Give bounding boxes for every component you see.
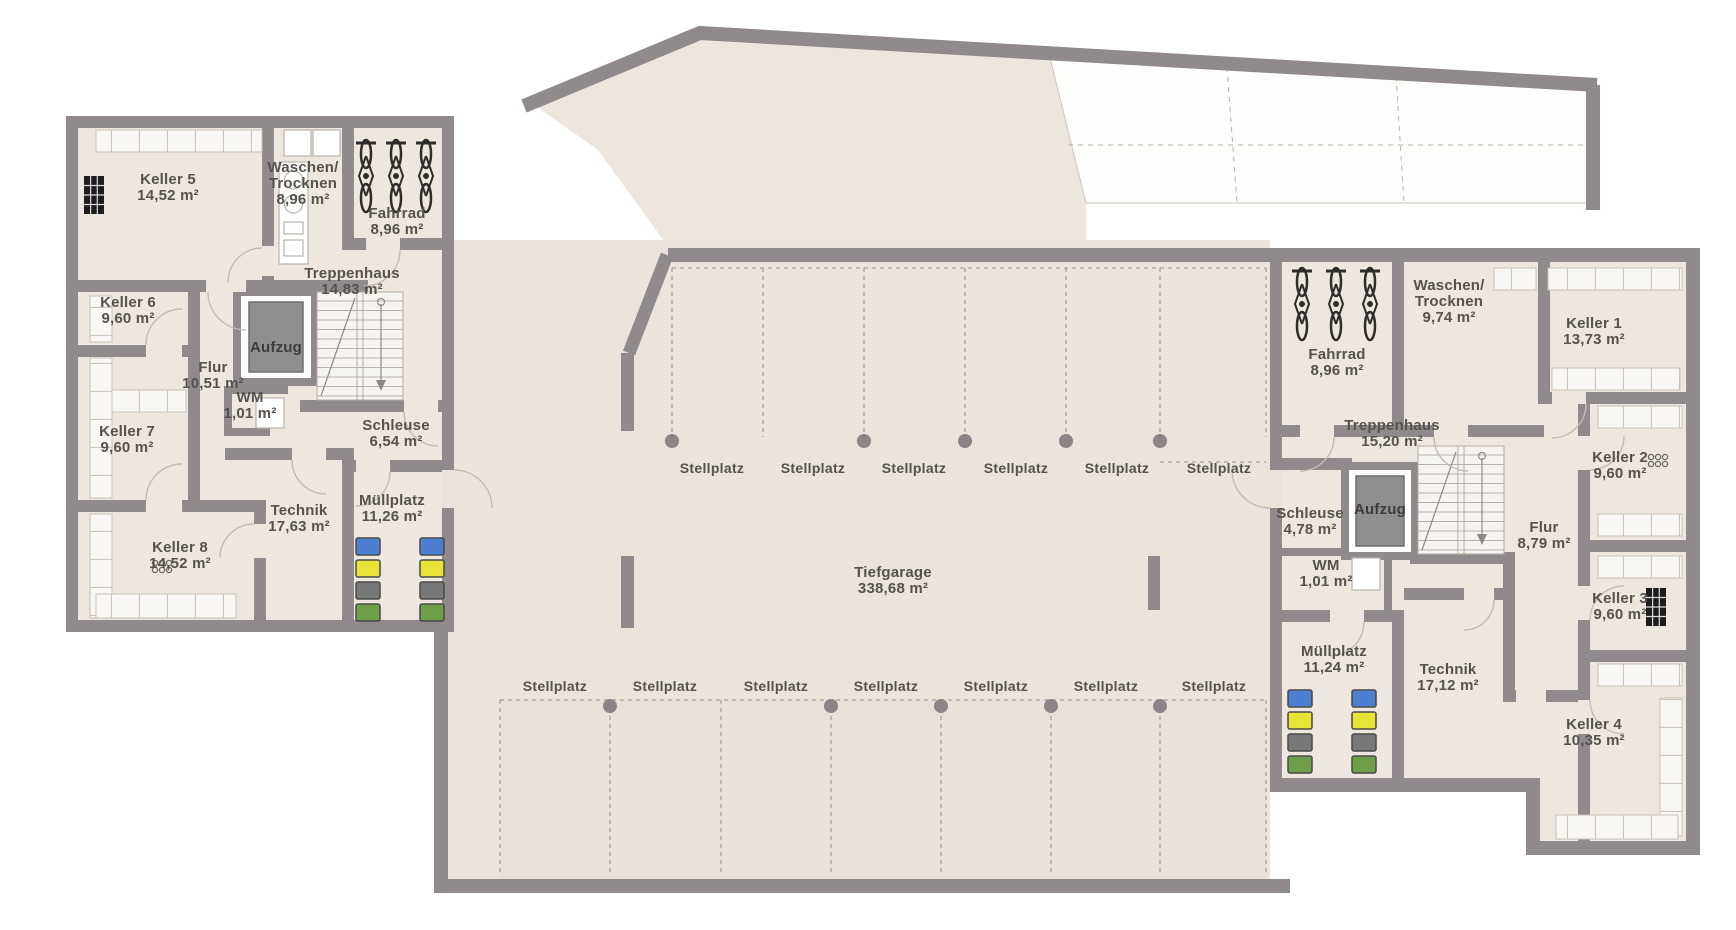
room-label-technik-right: Technik17,12 m²	[1417, 662, 1479, 694]
right-building	[1270, 248, 1700, 855]
stall-label: Stellplatz	[1074, 678, 1138, 694]
room-label-fahrrad-left: Fahrrad8,96 m²	[368, 206, 425, 238]
stall-label: Stellplatz	[854, 678, 918, 694]
room-label-keller-2: Keller 29,60 m²	[1592, 450, 1648, 482]
stall-label: Stellplatz	[1182, 678, 1246, 694]
washing-machine-icon	[1352, 558, 1380, 590]
room-label-waschen-trocknen-left: Waschen/Trocknen8,96 m²	[267, 160, 338, 208]
room-label-keller-8: Keller 814,52 m²	[149, 540, 211, 572]
stall-label: Stellplatz	[1085, 460, 1149, 476]
room-label-keller-6: Keller 69,60 m²	[100, 295, 156, 327]
room-label-flur-right: Flur8,79 m²	[1517, 520, 1570, 552]
room-label-treppenhaus-left: Treppenhaus14,83 m²	[304, 266, 400, 298]
room-label-aufzug-right: Aufzug	[1354, 502, 1406, 518]
room-label-keller-4: Keller 410,35 m²	[1563, 717, 1625, 749]
stall-label: Stellplatz	[744, 678, 808, 694]
stall-label: Stellplatz	[984, 460, 1048, 476]
stall-label: Stellplatz	[781, 460, 845, 476]
left-building	[66, 116, 454, 632]
floor-plan-drawing	[0, 0, 1736, 930]
room-label-keller-3: Keller 39,60 m²	[1592, 591, 1648, 623]
room-label-wm-right: WM1,01 m²	[1299, 558, 1352, 590]
room-label-aufzug-left: Aufzug	[250, 340, 302, 356]
floor-plan: Keller 514,52 m² Waschen/Trocknen8,96 m²…	[0, 0, 1736, 930]
room-label-wm-left: WM1,01 m²	[223, 390, 276, 422]
stall-label: Stellplatz	[964, 678, 1028, 694]
pallet-shelf-icon	[1646, 588, 1666, 626]
garage-label: Tiefgarage338,68 m²	[854, 565, 932, 597]
room-label-keller-5: Keller 514,52 m²	[137, 172, 199, 204]
stall-label: Stellplatz	[633, 678, 697, 694]
room-label-muellplatz-right: Müllplatz11,24 m²	[1301, 644, 1367, 676]
room-label-technik-left: Technik17,63 m²	[268, 503, 330, 535]
stall-label: Stellplatz	[523, 678, 587, 694]
stall-label: Stellplatz	[680, 460, 744, 476]
room-label-waschen-trocknen-right: Waschen/Trocknen9,74 m²	[1413, 278, 1484, 326]
room-label-fahrrad-right: Fahrrad8,96 m²	[1308, 347, 1365, 379]
room-label-muellplatz-left: Müllplatz11,26 m²	[359, 493, 425, 525]
stairs-icon	[1418, 446, 1504, 554]
stall-label: Stellplatz	[882, 460, 946, 476]
elevator-icon	[241, 296, 311, 378]
room-label-schleuse-left: Schleuse6,54 m²	[362, 418, 429, 450]
stall-label: Stellplatz	[1187, 460, 1251, 476]
room-label-keller-7: Keller 79,60 m²	[99, 424, 155, 456]
stairs-icon	[317, 292, 403, 400]
room-label-flur-left: Flur10,51 m²	[182, 360, 244, 392]
room-label-treppenhaus-right: Treppenhaus15,20 m²	[1344, 418, 1440, 450]
room-label-schleuse-right: Schleuse4,78 m²	[1276, 506, 1343, 538]
room-label-keller-1: Keller 113,73 m²	[1563, 316, 1625, 348]
pallet-shelf-icon	[84, 176, 104, 214]
